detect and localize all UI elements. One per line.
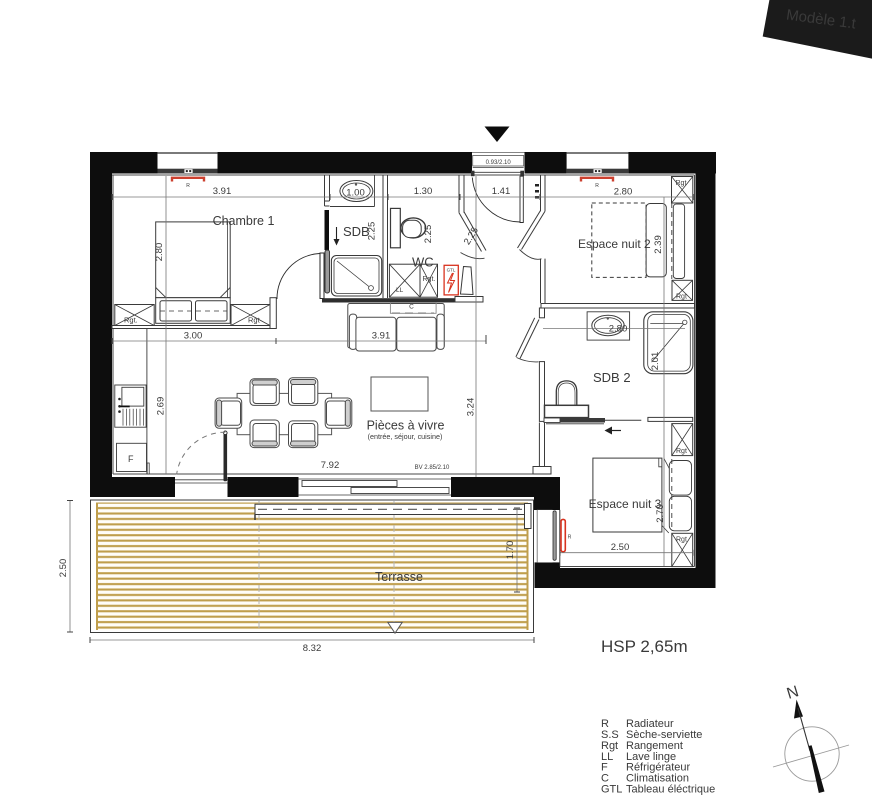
- svg-text:2.39: 2.39: [653, 235, 664, 254]
- svg-text:7.92: 7.92: [321, 460, 340, 471]
- svg-text:2.50: 2.50: [58, 559, 69, 578]
- svg-text:3.24: 3.24: [466, 398, 477, 417]
- svg-text:1.00: 1.00: [346, 188, 365, 199]
- svg-text:Terrasse: Terrasse: [375, 570, 423, 584]
- svg-text:R: R: [186, 183, 190, 189]
- svg-text:BV 2.85/2.10: BV 2.85/2.10: [415, 465, 450, 471]
- svg-text:Espace nuit 2: Espace nuit 2: [578, 237, 651, 251]
- svg-text:Rgt: Rgt: [676, 448, 687, 455]
- svg-text:Chambre 1: Chambre 1: [213, 214, 275, 228]
- svg-text:R: R: [568, 535, 572, 541]
- svg-text:GTL: GTL: [601, 784, 622, 796]
- svg-text:Rgt: Rgt: [248, 316, 261, 325]
- svg-text:8.32: 8.32: [303, 643, 322, 654]
- svg-text:C: C: [409, 304, 414, 311]
- svg-text:LL: LL: [396, 287, 404, 294]
- svg-text:R: R: [595, 183, 599, 189]
- svg-text:Rgt.: Rgt.: [124, 316, 138, 325]
- svg-text:(entrée, séjour, cuisine): (entrée, séjour, cuisine): [368, 432, 443, 441]
- svg-text:2.80: 2.80: [154, 243, 165, 262]
- svg-text:2.69: 2.69: [156, 397, 167, 416]
- svg-text:SDB 2: SDB 2: [593, 370, 631, 385]
- svg-text:Tableau éléctrique: Tableau éléctrique: [626, 784, 715, 796]
- svg-text:Rgt: Rgt: [676, 537, 687, 544]
- svg-text:HSP 2,65m: HSP 2,65m: [601, 637, 688, 656]
- svg-text:Espace nuit 3: Espace nuit 3: [589, 497, 662, 511]
- svg-text:Rgt: Rgt: [676, 294, 687, 301]
- svg-text:SDB: SDB: [343, 224, 370, 239]
- svg-text:2.50: 2.50: [611, 542, 630, 553]
- svg-text:2.01: 2.01: [650, 352, 661, 371]
- svg-text:WC: WC: [412, 255, 434, 270]
- svg-text:Pièces à vivre: Pièces à vivre: [367, 419, 445, 433]
- svg-text:1.41: 1.41: [492, 186, 511, 197]
- svg-text:3.91: 3.91: [213, 186, 232, 197]
- svg-text:GTL: GTL: [447, 268, 456, 273]
- svg-text:3.91: 3.91: [372, 331, 391, 342]
- svg-text:F: F: [128, 454, 134, 464]
- svg-text:2.80: 2.80: [609, 324, 628, 335]
- svg-text:1.70: 1.70: [505, 541, 516, 560]
- svg-text:0.93/2.10: 0.93/2.10: [486, 160, 512, 166]
- svg-text:2.80: 2.80: [614, 187, 633, 198]
- svg-text:1.30: 1.30: [414, 186, 433, 197]
- svg-text:Rgt: Rgt: [676, 180, 687, 187]
- svg-text:Rgt.: Rgt.: [423, 276, 436, 283]
- svg-text:2.25: 2.25: [423, 225, 434, 244]
- svg-text:3.00: 3.00: [184, 331, 203, 342]
